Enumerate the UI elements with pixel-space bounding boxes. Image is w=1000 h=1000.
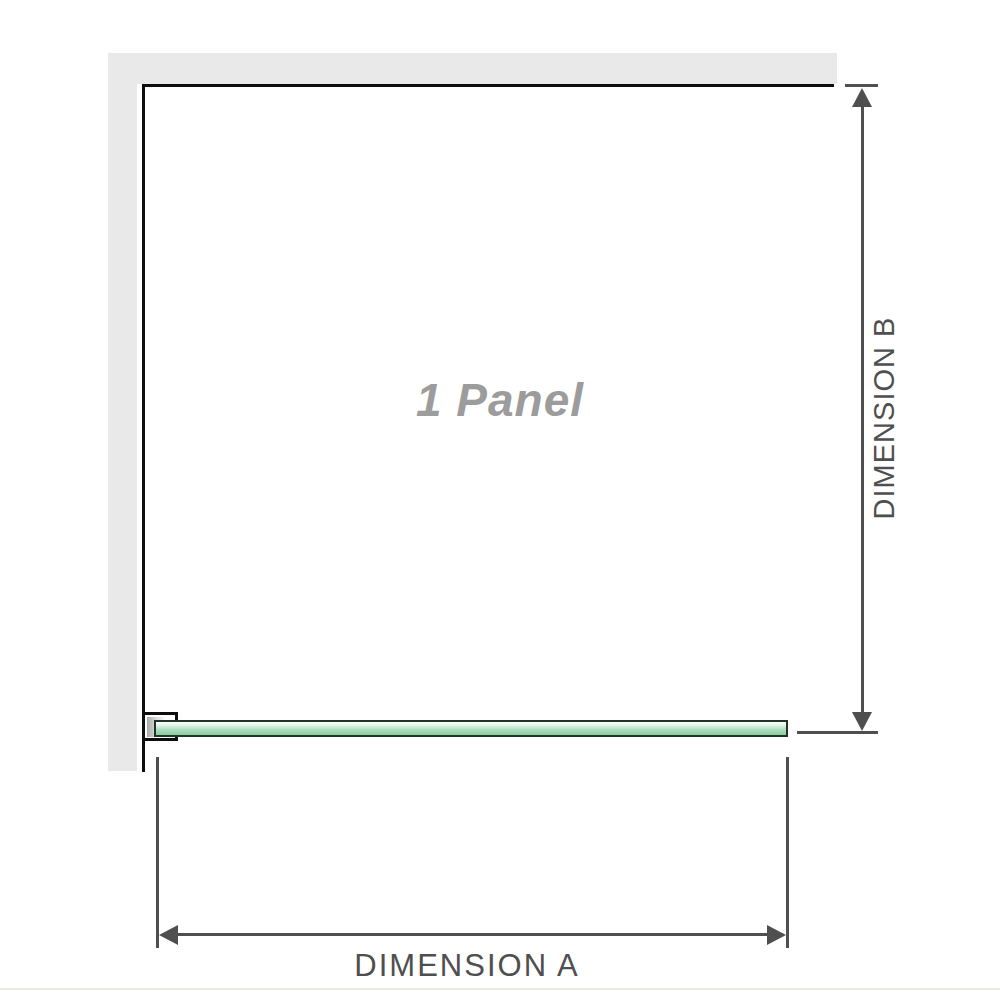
dimension-b-line xyxy=(861,92,864,727)
panel-dimension-diagram: 1 Panel DIMENSION B DIMENSION A xyxy=(0,0,1000,1000)
arrow-up-icon xyxy=(852,88,872,107)
wall-top xyxy=(108,53,837,84)
arrow-down-icon xyxy=(852,712,872,731)
extension-line-right xyxy=(786,757,789,948)
dimension-a-label: DIMENSION A xyxy=(354,948,579,984)
arrow-left-icon xyxy=(159,925,178,945)
arrow-right-icon xyxy=(767,925,786,945)
extension-line-left xyxy=(156,757,159,948)
glass-panel-bar xyxy=(154,720,788,737)
panel-count-label: 1 Panel xyxy=(416,373,584,427)
dimension-a-line xyxy=(163,933,783,936)
wall-left xyxy=(108,53,137,771)
dimension-b-tick-top xyxy=(845,84,878,87)
bottom-rule xyxy=(0,988,1000,990)
dimension-b-tick-bottom xyxy=(797,731,878,734)
panel-border-left xyxy=(142,84,145,772)
dimension-b-label: DIMENSION B xyxy=(868,317,901,520)
panel-border-top xyxy=(142,84,834,87)
